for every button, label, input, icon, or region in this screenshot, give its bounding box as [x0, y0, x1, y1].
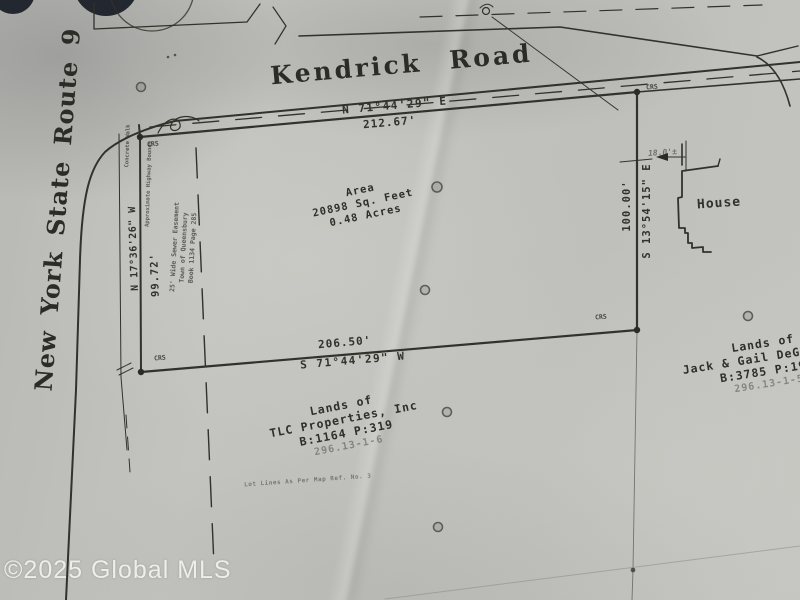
corner-monument-icon [634, 89, 640, 95]
speck [174, 54, 177, 57]
paper-ring-mark-icon [432, 182, 442, 192]
paper-ring-mark-icon [744, 312, 753, 321]
kendrick-north-edge-extension [757, 46, 798, 56]
highway-bounds-dashed-line [150, 71, 800, 127]
building-corner-outline [273, 7, 286, 44]
paper-ring-mark-icon [443, 408, 452, 417]
parcel-north-line-extension [637, 79, 800, 92]
mls-watermark: ©2025 Global MLS [4, 556, 232, 585]
survey-map-photo: Kendrick Road New York State Route 9 N 7… [0, 0, 800, 600]
paper-ring-mark-icon [137, 83, 146, 92]
corner-marker-se: CRS [595, 313, 607, 322]
punch-hole-icon [0, 0, 35, 14]
utility-pole-icon [483, 8, 490, 15]
walk-edge-line [119, 134, 127, 450]
corner-marker-ne: CRS [646, 83, 658, 92]
corner-monument-icon [634, 327, 640, 333]
east-bearing: S 13°54'15" E [641, 146, 653, 276]
walk-hatch-ticks [117, 363, 133, 375]
road-boundary-dashed-north [420, 5, 762, 17]
west-distance: 99.72' [148, 245, 162, 305]
corner-marker-nw: CRS [147, 140, 159, 149]
east-distance: 100.00' [621, 166, 633, 246]
paper-edge-shadow [385, 546, 800, 599]
survey-linework [0, 0, 800, 600]
punch-hole-icon [73, 0, 139, 16]
house-roofline-tick [718, 159, 720, 166]
paper-ring-mark-icon [434, 523, 443, 532]
corner-marker-sw: CRS [154, 354, 166, 363]
corner-monument-icon [137, 134, 143, 140]
route9-kendrick-curb [66, 62, 800, 600]
corner-monument-icon [138, 369, 144, 375]
house-label: House [697, 194, 742, 212]
boundary-continuation-south [632, 330, 637, 600]
monument-icon [631, 568, 636, 573]
speck [167, 56, 170, 59]
paper-ring-mark-icon [421, 286, 430, 295]
